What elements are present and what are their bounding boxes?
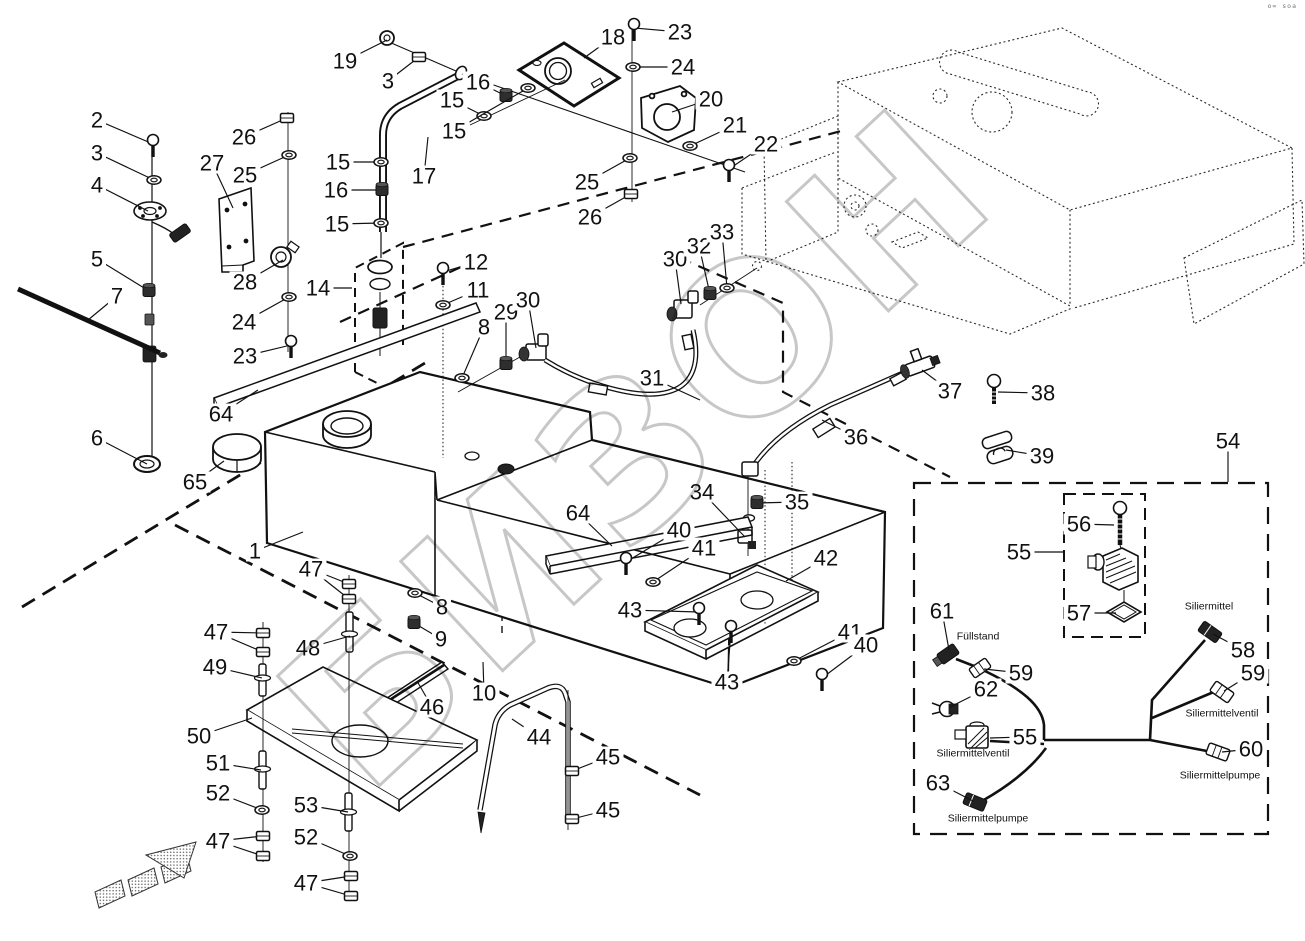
callout-42: 42 (814, 546, 838, 571)
screw-head (629, 19, 640, 30)
direction-arrow (95, 842, 196, 908)
fitting-top (500, 356, 512, 360)
callout-8: 8 (478, 315, 490, 340)
callout-55: 55 (1007, 540, 1031, 565)
callout-4: 4 (91, 173, 103, 198)
callout-7: 7 (111, 284, 123, 309)
valve-55 (955, 722, 988, 748)
callout-14: 14 (306, 276, 330, 301)
callout-5: 5 (91, 247, 103, 272)
callout-38: 38 (1031, 381, 1055, 406)
callout-34: 34 (690, 480, 714, 505)
fitting-top (143, 283, 155, 287)
callout-19: 19 (333, 49, 357, 74)
fitting-top (500, 88, 512, 92)
callout-1: 1 (249, 539, 261, 564)
callout-40: 40 (667, 518, 691, 543)
gasket-plate-18 (519, 43, 619, 106)
callout-36: 36 (844, 425, 868, 450)
washer-hole (412, 591, 418, 595)
screw-head (724, 160, 735, 171)
callout-10: 10 (472, 681, 496, 706)
callout-26: 26 (232, 125, 256, 150)
fitting-top (376, 182, 388, 186)
callout-65: 65 (183, 470, 207, 495)
platform-50 (247, 667, 477, 811)
tee-fitting-37 (895, 343, 941, 379)
callout-3: 3 (382, 69, 394, 94)
corner-mark: o= soa (1268, 2, 1297, 10)
label-siliermittelpumpe-l: Siliermittelpumpe (948, 813, 1029, 825)
callout-6: 6 (91, 426, 103, 451)
callout-52: 52 (294, 825, 318, 850)
plug-62 (932, 702, 958, 717)
callout-21: 21 (723, 113, 747, 138)
callout-31: 31 (640, 366, 664, 391)
screw-head (621, 553, 632, 564)
callout-15: 15 (442, 119, 466, 144)
callout-16: 16 (324, 178, 348, 203)
callout-50: 50 (187, 724, 211, 749)
callout-54: 54 (1216, 429, 1240, 454)
screw-head (438, 263, 449, 274)
screw-head (148, 135, 159, 146)
washer-hole (650, 580, 656, 584)
screw-head (286, 336, 297, 347)
washer-hole (259, 808, 265, 812)
washer-hole (378, 221, 384, 225)
callout-28: 28 (233, 270, 257, 295)
diagram-canvas: 2345761932625272824231516151714182324161… (0, 0, 1305, 941)
callout-9: 9 (435, 627, 447, 652)
label-siliermittelventil-r: Siliermittelventil (1186, 708, 1259, 720)
callout-25: 25 (233, 163, 257, 188)
additive-tank (265, 282, 885, 688)
label-fuellstand: Füllstand (957, 631, 1000, 643)
callout-64: 64 (566, 501, 590, 526)
wiring-harness (956, 640, 1216, 801)
callout-47: 47 (294, 871, 318, 896)
callout-12: 12 (464, 250, 488, 275)
connector-59-left (969, 658, 992, 678)
washer-hole (459, 376, 465, 380)
callout-23: 23 (233, 344, 257, 369)
tank-cap-65 (213, 434, 261, 472)
machine-outline (742, 28, 1304, 334)
callout-41: 41 (692, 536, 716, 561)
washer-hole (525, 86, 531, 90)
callout-15: 15 (325, 212, 349, 237)
washer-hole (347, 854, 353, 858)
callout-39: 39 (1030, 444, 1054, 469)
callout-46: 46 (420, 695, 444, 720)
callout-47: 47 (204, 620, 228, 645)
callout-51: 51 (206, 751, 230, 776)
callout-25: 25 (575, 170, 599, 195)
washer-hole (724, 286, 730, 290)
callout-35: 35 (785, 490, 809, 515)
callout-64: 64 (209, 402, 233, 427)
washer-hole (151, 178, 157, 182)
callout-24: 24 (232, 310, 256, 335)
callout-49: 49 (203, 655, 227, 680)
callout-16: 16 (466, 70, 490, 95)
label-siliermittelventil-l: Siliermittelventil (937, 748, 1010, 760)
callout-37: 37 (938, 379, 962, 404)
washer-hole (627, 156, 633, 160)
washer-hole (791, 659, 797, 663)
washer-hole (286, 295, 292, 299)
callout-27: 27 (200, 151, 224, 176)
callout-8: 8 (436, 595, 448, 620)
callout-24: 24 (671, 55, 695, 80)
connector-63 (963, 792, 988, 811)
callout-33: 33 (710, 220, 734, 245)
fitting-top (704, 286, 716, 290)
callout-3: 3 (91, 141, 103, 166)
callout-47: 47 (299, 557, 323, 582)
callout-18: 18 (601, 25, 625, 50)
callout-62: 62 (974, 677, 998, 702)
screw-head (694, 603, 705, 614)
fitting-top (408, 615, 420, 619)
washer-hole (440, 303, 446, 307)
callout-59: 59 (1241, 661, 1265, 686)
callout-23: 23 (668, 20, 692, 45)
washer-hole (687, 144, 693, 148)
screw-head (817, 669, 828, 680)
callout-43: 43 (715, 670, 739, 695)
callout-61: 61 (930, 599, 954, 624)
callout-11: 11 (467, 278, 490, 303)
callout-53: 53 (294, 793, 318, 818)
callout-17: 17 (412, 164, 436, 189)
screw-head (726, 621, 737, 632)
connector-59-right (1210, 681, 1235, 703)
connector-58 (1198, 621, 1223, 643)
label-siliermittel: Siliermittel (1185, 601, 1233, 613)
callout-30: 30 (516, 288, 540, 313)
callout-52: 52 (206, 781, 230, 806)
callout-58: 58 (1231, 638, 1255, 663)
washer-hole (286, 153, 292, 157)
callout-47: 47 (206, 829, 230, 854)
callout-55: 55 (1013, 725, 1037, 750)
label-siliermittelpumpe-r: Siliermittelpumpe (1180, 770, 1261, 782)
callout-43: 43 (618, 598, 642, 623)
bracket-27 (219, 188, 254, 272)
dipstick-assembly (134, 140, 191, 472)
solenoid-valve-group (1088, 502, 1141, 623)
callout-22: 22 (754, 132, 778, 157)
clamp-39 (981, 430, 1014, 465)
parts-diagram-page: 2345761932625272824231516151714182324161… (0, 0, 1305, 941)
callout-57: 57 (1067, 601, 1091, 626)
callout-59: 59 (1009, 661, 1033, 686)
callout-44: 44 (527, 725, 551, 750)
washer-hole (378, 160, 384, 164)
clamp-28 (271, 112, 299, 352)
callout-45: 45 (596, 798, 620, 823)
washer-hole (630, 65, 636, 69)
callout-20: 20 (699, 87, 723, 112)
callout-15: 15 (440, 88, 464, 113)
callout-60: 60 (1239, 737, 1263, 762)
bracket-20 (641, 86, 696, 142)
callout-48: 48 (296, 636, 320, 661)
callout-2: 2 (91, 108, 103, 133)
fitting-top (751, 495, 763, 499)
bolt-38 (988, 375, 1001, 405)
callout-56: 56 (1067, 512, 1091, 537)
tube-44 (478, 686, 568, 833)
callout-15: 15 (326, 150, 350, 175)
callout-40: 40 (854, 633, 878, 658)
hose-31 (545, 330, 696, 395)
connector-61 (931, 643, 959, 668)
callout-45: 45 (596, 745, 620, 770)
callout-26: 26 (578, 205, 602, 230)
callout-63: 63 (926, 771, 950, 796)
